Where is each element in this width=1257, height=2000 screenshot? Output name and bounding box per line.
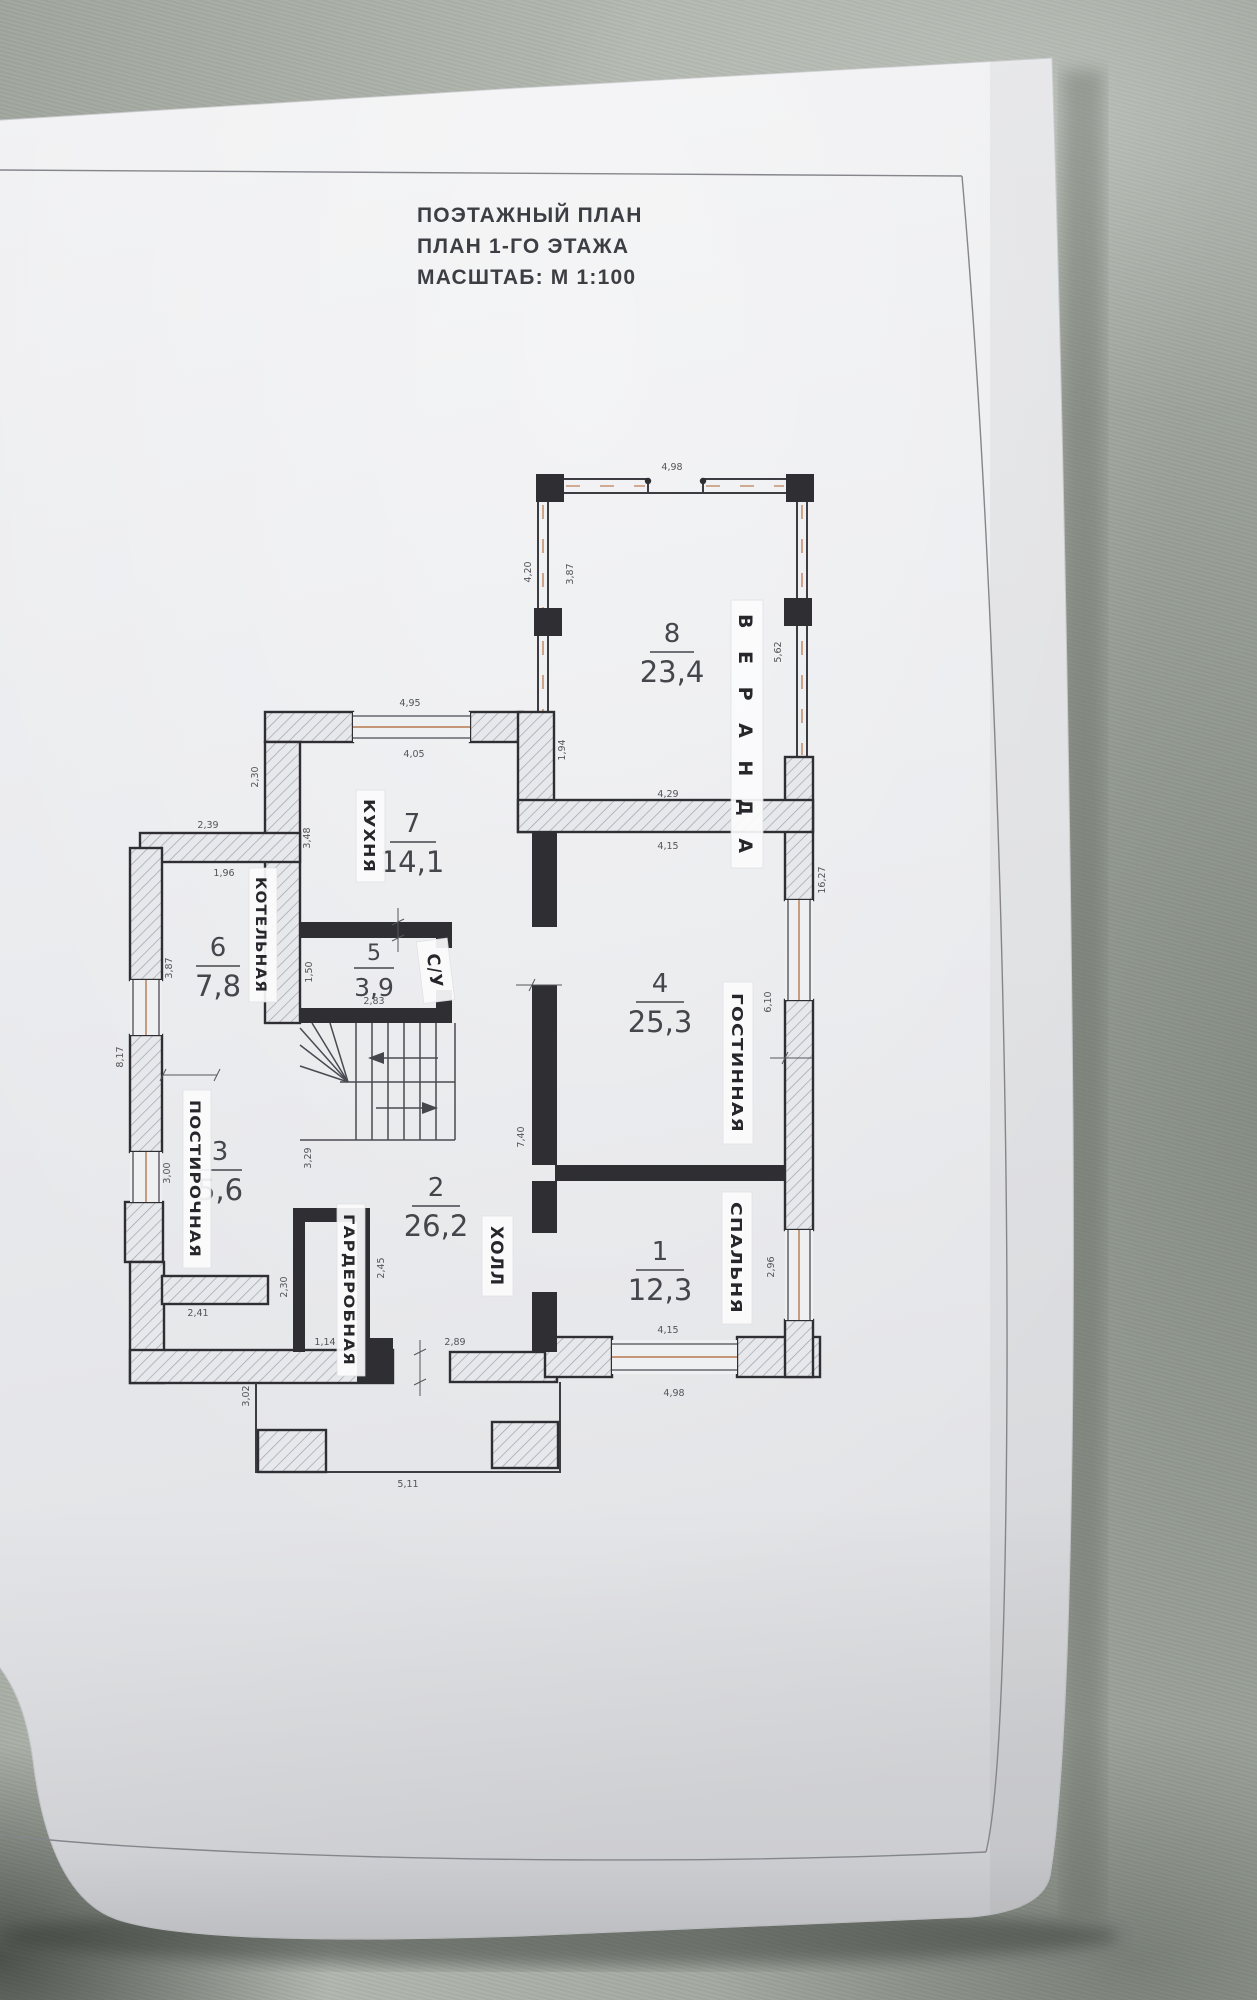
porch-pillar bbox=[258, 1430, 326, 1472]
room-label-boiler: КОТЕЛЬНАЯ bbox=[249, 868, 277, 1002]
room-4-number: 4 bbox=[652, 969, 669, 999]
wall-segment bbox=[125, 1202, 163, 1262]
dim-laundry-left: 3,00 bbox=[162, 1162, 173, 1183]
wall-segment bbox=[518, 800, 813, 832]
floor-plan-sheet: ПОЭТАЖНЫЙ ПЛАН ПЛАН 1-ГО ЭТАЖА МАСШТАБ: … bbox=[0, 0, 1257, 2000]
dim-left-outer: 8,17 bbox=[115, 1046, 126, 1067]
wall-segment bbox=[300, 922, 450, 938]
wall-segment bbox=[140, 833, 300, 862]
dim-wardrobe-left: 2,30 bbox=[279, 1276, 290, 1297]
room-6-area: 7,8 bbox=[195, 969, 241, 1003]
dim-wardrobe-bottom: 1,14 bbox=[314, 1337, 335, 1348]
opening-dot bbox=[700, 478, 706, 484]
dim-hall-right: 7,40 bbox=[516, 1126, 527, 1147]
dim-bottom-left: 2,41 bbox=[187, 1308, 208, 1319]
dim-veranda-left-outer: 4,20 bbox=[523, 561, 534, 582]
wall-segment bbox=[785, 1000, 813, 1230]
window-living-right bbox=[785, 900, 813, 1000]
wall-segment bbox=[532, 1292, 557, 1352]
wall-segment bbox=[130, 1035, 162, 1152]
wall-segment bbox=[300, 1008, 452, 1023]
window-left-boiler bbox=[130, 980, 162, 1035]
room-label-laundry-text: ПОСТИРОЧНАЯ bbox=[186, 1100, 202, 1258]
wall-segment bbox=[555, 1165, 785, 1181]
room-label-bedroom: СПАЛЬНЯ bbox=[722, 1192, 752, 1324]
dim-bedroom-bottom-inner: 4,15 bbox=[657, 1325, 678, 1336]
dim-bedroom-bottom-outer: 4,98 bbox=[663, 1388, 684, 1399]
dim-boiler-top-outer: 2,39 bbox=[197, 820, 218, 831]
room-6-number: 6 bbox=[210, 933, 227, 963]
wall-segment bbox=[470, 712, 523, 742]
room-8-number: 8 bbox=[664, 619, 681, 649]
dim-boiler-top-inner: 1,96 bbox=[213, 868, 234, 879]
dim-veranda-left-inner: 3,87 bbox=[565, 563, 576, 584]
dim-entry: 2,89 bbox=[444, 1337, 465, 1348]
room-2-number: 2 bbox=[428, 1173, 445, 1203]
dim-porch-left: 3,02 bbox=[241, 1385, 252, 1406]
wall-segment bbox=[532, 1181, 557, 1233]
wall-segment bbox=[532, 832, 557, 927]
wall-segment bbox=[450, 1352, 557, 1382]
window-kitchen-top bbox=[353, 712, 470, 742]
room-label-hall-text: ХОЛЛ bbox=[486, 1226, 506, 1286]
title-line-1: ПОЭТАЖНЫЙ ПЛАН bbox=[417, 203, 643, 227]
room-label-wardrobe: ГАРДЕРОБНАЯ bbox=[337, 1204, 365, 1376]
dim-stairs-left: 3,29 bbox=[303, 1147, 314, 1168]
room-label-laundry: ПОСТИРОЧНАЯ bbox=[183, 1090, 211, 1268]
room-1-area: 12,3 bbox=[628, 1273, 693, 1307]
dim-wc-left: 1,50 bbox=[304, 961, 315, 982]
column bbox=[784, 598, 812, 626]
room-5-area: 3,9 bbox=[354, 973, 394, 1002]
room-label-wc-text: С/У bbox=[422, 952, 446, 989]
column bbox=[536, 474, 564, 502]
column bbox=[786, 474, 814, 502]
window-bedroom-right bbox=[785, 1230, 813, 1320]
title-line-2: ПЛАН 1-ГО ЭТАЖА bbox=[417, 235, 629, 258]
room-7-area: 14,1 bbox=[380, 845, 445, 879]
dim-kitchen-left: 2,30 bbox=[250, 766, 261, 787]
dim-porch-bottom: 5,11 bbox=[397, 1479, 418, 1490]
porch-pillar bbox=[492, 1422, 558, 1468]
window-left-laundry bbox=[130, 1152, 162, 1202]
room-7-number: 7 bbox=[404, 809, 421, 839]
dim-living-top-inner: 4,15 bbox=[657, 841, 678, 852]
title-line-3: МАСШТАБ: М 1:100 bbox=[417, 266, 636, 289]
opening-dot bbox=[645, 478, 651, 484]
room-1-number: 1 bbox=[652, 1237, 669, 1267]
room-label-bedroom-text: СПАЛЬНЯ bbox=[727, 1202, 745, 1314]
dim-kitchen-left-lower: 3,48 bbox=[302, 827, 313, 848]
dim-kitchen-top-inner: 4,05 bbox=[403, 749, 424, 760]
wall-segment bbox=[293, 1208, 305, 1352]
room-2-area: 26,2 bbox=[404, 1209, 469, 1243]
room-label-living: ГОСТИННАЯ bbox=[723, 982, 753, 1144]
wall-segment bbox=[162, 1276, 268, 1304]
title-block: ПОЭТАЖНЫЙ ПЛАН ПЛАН 1-ГО ЭТАЖА МАСШТАБ: … bbox=[417, 203, 643, 289]
column bbox=[534, 608, 562, 636]
room-label-boiler-text: КОТЕЛЬНАЯ bbox=[252, 877, 268, 993]
room-label-living-text: ГОСТИННАЯ bbox=[728, 993, 746, 1133]
room-8-area: 23,4 bbox=[640, 655, 705, 689]
room-label-wardrobe-text: ГАРДЕРОБНАЯ bbox=[340, 1214, 356, 1366]
window-bedroom-bottom bbox=[612, 1340, 737, 1374]
dim-right-outer: 16,27 bbox=[817, 866, 828, 893]
room-label-kitchen: КУХНЯ bbox=[356, 790, 385, 882]
room-label-kitchen-text: КУХНЯ bbox=[360, 799, 378, 873]
wall-segment bbox=[265, 712, 353, 742]
photo-of-floor-plan: ПОЭТАЖНЫЙ ПЛАН ПЛАН 1-ГО ЭТАЖА МАСШТАБ: … bbox=[0, 0, 1257, 2000]
dim-kitchen-top-outer: 4,95 bbox=[399, 698, 420, 709]
dim-bedroom-right: 2,96 bbox=[766, 1256, 777, 1277]
room-4-area: 25,3 bbox=[628, 1005, 693, 1039]
room-3-number: 3 bbox=[212, 1137, 229, 1167]
dim-living-right: 6,10 bbox=[763, 991, 774, 1012]
room-label-veranda: ВЕРАНДА bbox=[731, 600, 763, 868]
wall-segment bbox=[532, 985, 557, 1165]
dim-boiler-left: 3,87 bbox=[164, 957, 175, 978]
wall-segment bbox=[785, 1320, 813, 1377]
dim-kitchen-veranda: 1,94 bbox=[557, 739, 568, 760]
dim-veranda-top: 4,98 bbox=[661, 462, 682, 473]
dim-veranda-right: 5,62 bbox=[773, 641, 784, 662]
dim-living-top-outer: 4,29 bbox=[657, 789, 678, 800]
dim-hall-left: 2,45 bbox=[376, 1257, 387, 1278]
wall-segment bbox=[130, 848, 162, 980]
room-5-number: 5 bbox=[367, 941, 381, 966]
room-label-hall: ХОЛЛ bbox=[482, 1216, 513, 1296]
